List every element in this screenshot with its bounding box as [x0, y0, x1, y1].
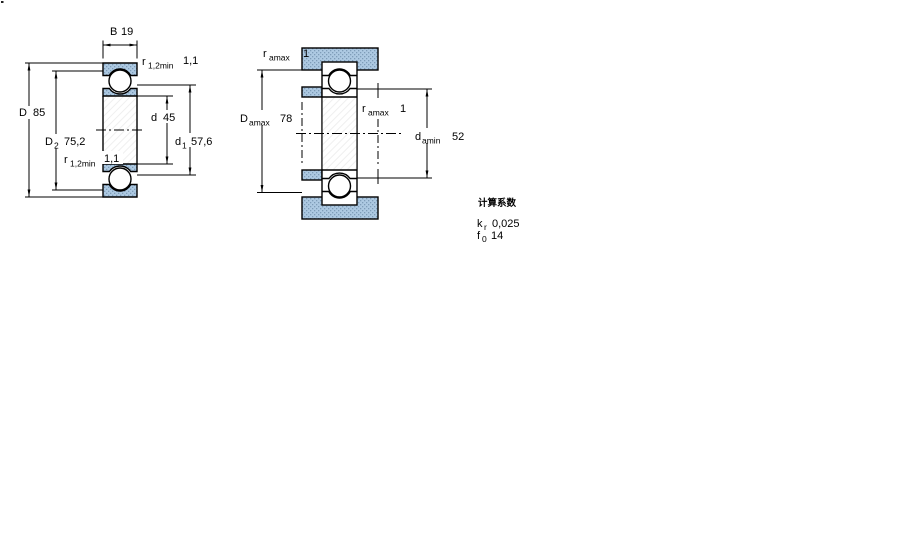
factor-f0-symbol: f: [477, 230, 481, 242]
right-abutment-diagram: r amax 1 D amax 78 r amax 1 d amin 52: [238, 48, 466, 219]
shaft-shoulder-bottom: [302, 170, 322, 180]
left-bearing-cross-section: B 19 r 1,2min 1,1 D 85 D 2 75,2 r 1,2min…: [17, 26, 212, 197]
label-D2: D: [45, 136, 53, 148]
ball: [329, 70, 351, 92]
value-d: 45: [163, 112, 175, 124]
label-d: d: [151, 112, 157, 124]
corner-speck: [1, 1, 4, 3]
label-ra-top-sub: amax: [269, 53, 291, 63]
label-ra-mid-sub: amax: [368, 108, 390, 118]
label-Da-sub: amax: [249, 118, 271, 128]
label-r-bottom-sub: 1,2min: [70, 159, 96, 169]
label-D2-sub: 2: [54, 141, 59, 151]
factor-kr-sub: r: [484, 222, 487, 232]
label-r-top-sub: 1,2min: [148, 61, 174, 71]
bearing-half-section: [103, 63, 137, 96]
shaft-shoulder-top: [302, 87, 322, 97]
value-Da: 78: [280, 113, 292, 125]
value-r-bottom: 1,1: [104, 153, 119, 165]
label-d1-sub: 1: [182, 141, 187, 151]
label-r-top: r: [142, 56, 146, 68]
calculation-factors-title: 计算系数: [478, 197, 517, 209]
value-da: 52: [452, 131, 464, 143]
value-D2: 75,2: [64, 136, 85, 148]
label-Da: D: [240, 113, 248, 125]
label-D: D: [19, 107, 27, 119]
factor-kr-value: 0,025: [492, 218, 520, 230]
bearing-drawing-page: B 19 r 1,2min 1,1 D 85 D 2 75,2 r 1,2min…: [0, 0, 900, 560]
calculation-factors: 计算系数 k r 0,025 f 0 14: [477, 197, 520, 244]
value-D: 85: [33, 107, 45, 119]
factor-f0-value: 14: [491, 230, 503, 242]
label-da-sub: amin: [422, 136, 441, 146]
value-B: 19: [121, 26, 133, 38]
factor-f0-sub: 0: [482, 234, 487, 244]
label-d1: d: [175, 136, 181, 148]
label-B: B: [110, 26, 117, 38]
label-da: d: [415, 131, 421, 143]
value-d1: 57,6: [191, 136, 212, 148]
label-ra-top: r: [263, 48, 267, 60]
ball: [109, 70, 131, 92]
factor-kr-symbol: k: [477, 218, 483, 230]
value-r-top: 1,1: [183, 55, 198, 67]
value-ra-mid: 1: [400, 103, 406, 115]
value-ra-top: 1: [303, 48, 309, 60]
label-r-bottom: r: [64, 154, 68, 166]
bearing-drawing: B 19 r 1,2min 1,1 D 85 D 2 75,2 r 1,2min…: [0, 0, 900, 560]
label-ra-mid: r: [362, 103, 366, 115]
